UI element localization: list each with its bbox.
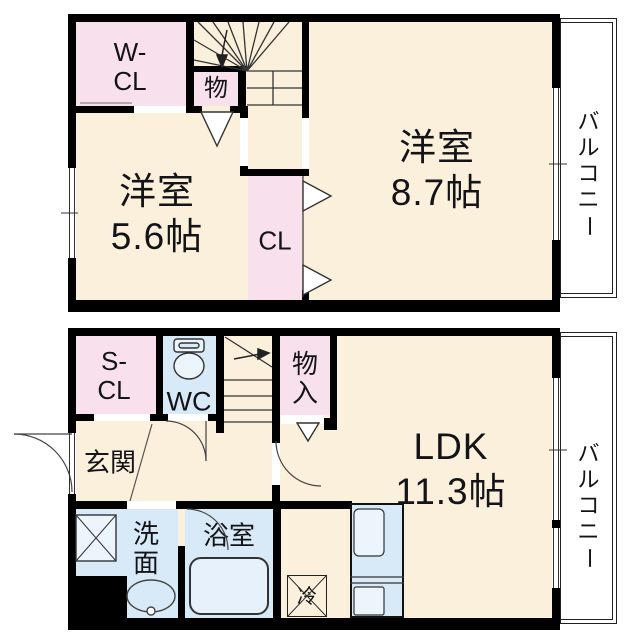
label-closet: CL — [258, 227, 291, 256]
label-bathroom: 浴室 — [203, 522, 255, 551]
door-opening — [272, 443, 280, 485]
kitchen-counter-icon — [350, 503, 404, 618]
label-wc: WC — [167, 386, 212, 417]
wall — [68, 501, 352, 509]
door-opening — [281, 415, 324, 424]
wall — [186, 106, 202, 113]
balcony-2f: バルコニー — [560, 18, 617, 298]
wall — [178, 546, 185, 618]
wall — [324, 418, 337, 430]
label-storage-1f: 物入 — [292, 350, 318, 408]
door-opening — [302, 118, 309, 168]
balcony-2f-label: バルコニー — [561, 109, 616, 239]
door-opening — [134, 106, 186, 113]
window — [552, 88, 560, 240]
label-storage-2f: 物 — [204, 75, 228, 103]
label-washroom: 洗面 — [133, 520, 159, 578]
door-opening — [127, 501, 176, 509]
label-washer: 洗 — [86, 528, 106, 550]
wall — [302, 22, 309, 118]
wall — [216, 336, 224, 433]
balcony-1f: バルコニー — [560, 332, 617, 624]
door-opening — [240, 118, 248, 166]
label-wcl: W-CL — [113, 38, 146, 96]
window — [552, 378, 560, 520]
wall — [302, 290, 309, 300]
wall — [240, 106, 248, 118]
wall — [272, 336, 280, 443]
label-room-8-7: 洋室8.7帖 — [391, 125, 483, 215]
label-fridge: 冷 — [297, 586, 317, 608]
window — [552, 528, 560, 588]
label-genkan: 玄関 — [84, 449, 136, 478]
wall — [76, 106, 134, 113]
label-ldk: LDK11.3帖 — [395, 424, 506, 514]
floor-plan: バルコニー W-CL 物 CL 洋室5.6帖 洋室8.7帖 — [0, 0, 640, 640]
entrance-door-arc-icon — [14, 433, 75, 494]
door-opening — [94, 414, 150, 421]
wall — [186, 22, 194, 113]
label-room-5-6: 洋室5.6帖 — [111, 169, 203, 259]
wall — [330, 336, 337, 430]
wall — [240, 169, 309, 176]
wall — [273, 509, 281, 618]
wall — [156, 336, 163, 421]
entrance-door-opening — [68, 433, 76, 494]
balcony-1f-label: バルコニー — [561, 441, 616, 571]
window — [68, 168, 76, 258]
label-shoe-closet: S-CL — [97, 347, 130, 405]
wall-void — [68, 576, 127, 630]
